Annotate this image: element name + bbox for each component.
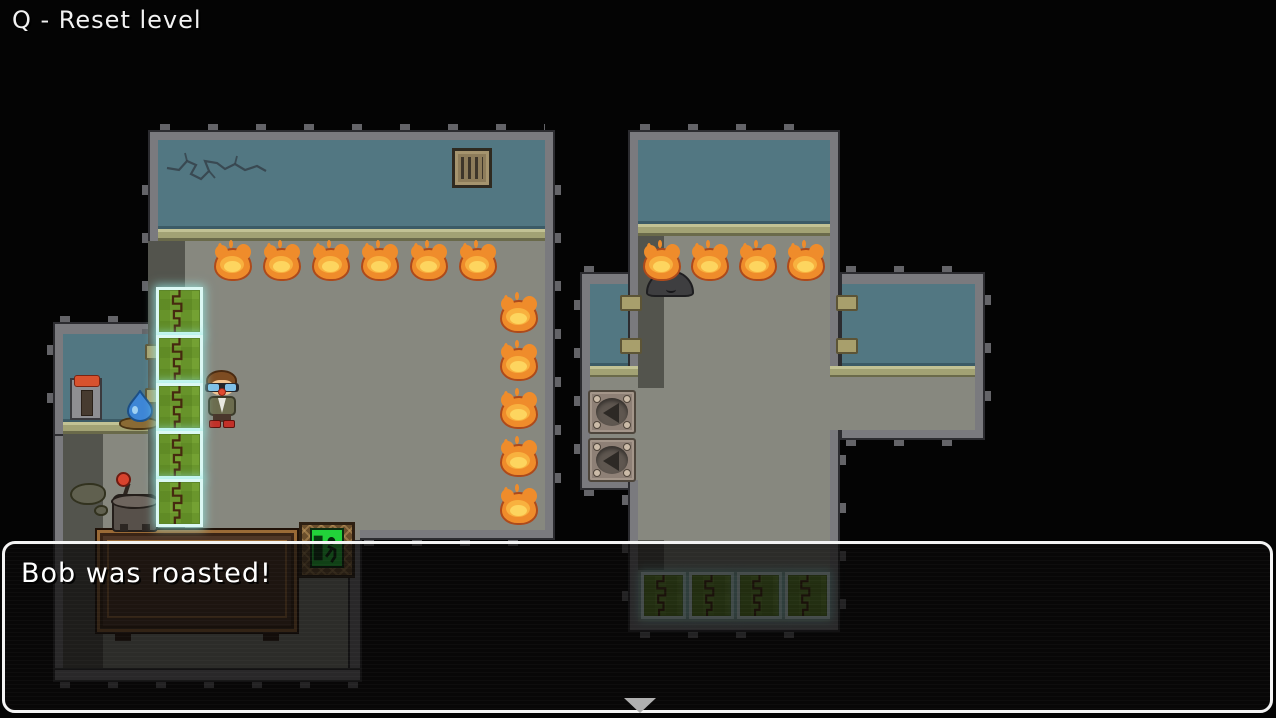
hedge-block (156, 431, 203, 479)
wall-bracket (836, 338, 858, 354)
left-wing-baseboard (590, 366, 638, 377)
hedge-block (156, 383, 203, 431)
game-screen: Bob was roasted! Q - Reset level (0, 0, 1276, 718)
fire-sprite (359, 243, 399, 279)
right-room-baseboard (638, 224, 830, 236)
wall-ticks (640, 124, 830, 130)
fire-sprite (498, 343, 538, 379)
fire-sprite (310, 243, 350, 279)
bob-nose (218, 388, 226, 396)
wall-ticks (846, 266, 978, 272)
reset-hint: Q - Reset level (12, 6, 202, 34)
player-bob (204, 370, 240, 428)
wall-crack-decal (165, 148, 270, 193)
fire-sprite (498, 391, 538, 427)
fire-sprite (408, 243, 448, 279)
wall-bracket (620, 338, 642, 354)
lever-handle (74, 375, 100, 387)
pot-foot (120, 524, 128, 531)
arrow-pad-left (588, 390, 636, 434)
pot-foot (142, 524, 150, 531)
water-drop (126, 390, 154, 422)
rock (94, 505, 108, 516)
lever-slot (81, 390, 93, 416)
bob-glasses-lens (225, 384, 236, 391)
wall-ticks (555, 185, 561, 505)
wall-ticks (160, 124, 545, 130)
fire-sprite (498, 487, 538, 523)
arrow-pad-left (588, 438, 636, 482)
dialog-text: Bob was roasted! (21, 558, 272, 589)
dialog-continue-arrow[interactable] (624, 698, 656, 713)
pot-lever-ball (116, 472, 131, 487)
right-wing-baseboard (830, 366, 975, 377)
wall-ticks (985, 295, 991, 423)
wall-bracket (836, 295, 858, 311)
fire-sprite (785, 243, 825, 279)
fire-sprite (689, 243, 729, 279)
fire-sprite (641, 243, 681, 279)
left-room-baseboard (158, 229, 545, 241)
fire-sprite (261, 243, 301, 279)
rock (70, 483, 106, 505)
right-wing-floor (830, 377, 975, 430)
wall-ticks (846, 440, 978, 446)
bob-shoe (209, 420, 221, 428)
right-wing-back-wall (842, 284, 975, 366)
fire-sprite (737, 243, 777, 279)
fire-sprite (212, 243, 252, 279)
wall-ticks (584, 490, 628, 496)
wall-ticks (574, 300, 580, 470)
pot-rim (111, 494, 159, 509)
hedge-block (156, 335, 203, 383)
wall-bracket (620, 295, 642, 311)
wall-ticks (60, 316, 148, 322)
hedge-block (156, 479, 203, 527)
fire-sprite (457, 243, 497, 279)
right-room-back-wall (638, 140, 830, 224)
cooking-pot (112, 494, 158, 532)
bob-shoe (223, 420, 235, 428)
vent-grate (452, 148, 492, 188)
hedge-block (156, 287, 203, 335)
wall-ticks (47, 345, 53, 430)
fire-sprite (498, 439, 538, 475)
wall-lever (70, 378, 102, 420)
dialog-box[interactable]: Bob was roasted! (2, 541, 1273, 713)
fire-sprite (498, 295, 538, 331)
wall-ticks (584, 266, 630, 272)
